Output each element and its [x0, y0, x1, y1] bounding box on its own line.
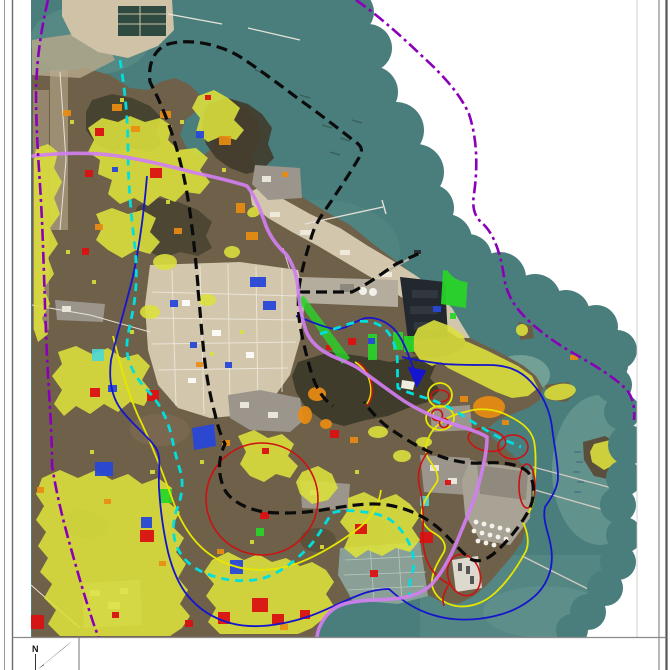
north-label: N: [32, 644, 39, 654]
satellite-imagery: [30, 0, 660, 646]
north-arrow: N: [32, 641, 72, 670]
map-canvas: N: [0, 0, 670, 670]
satellite-planning-map: N: [0, 0, 670, 670]
compass-needle-icon: [38, 641, 72, 669]
